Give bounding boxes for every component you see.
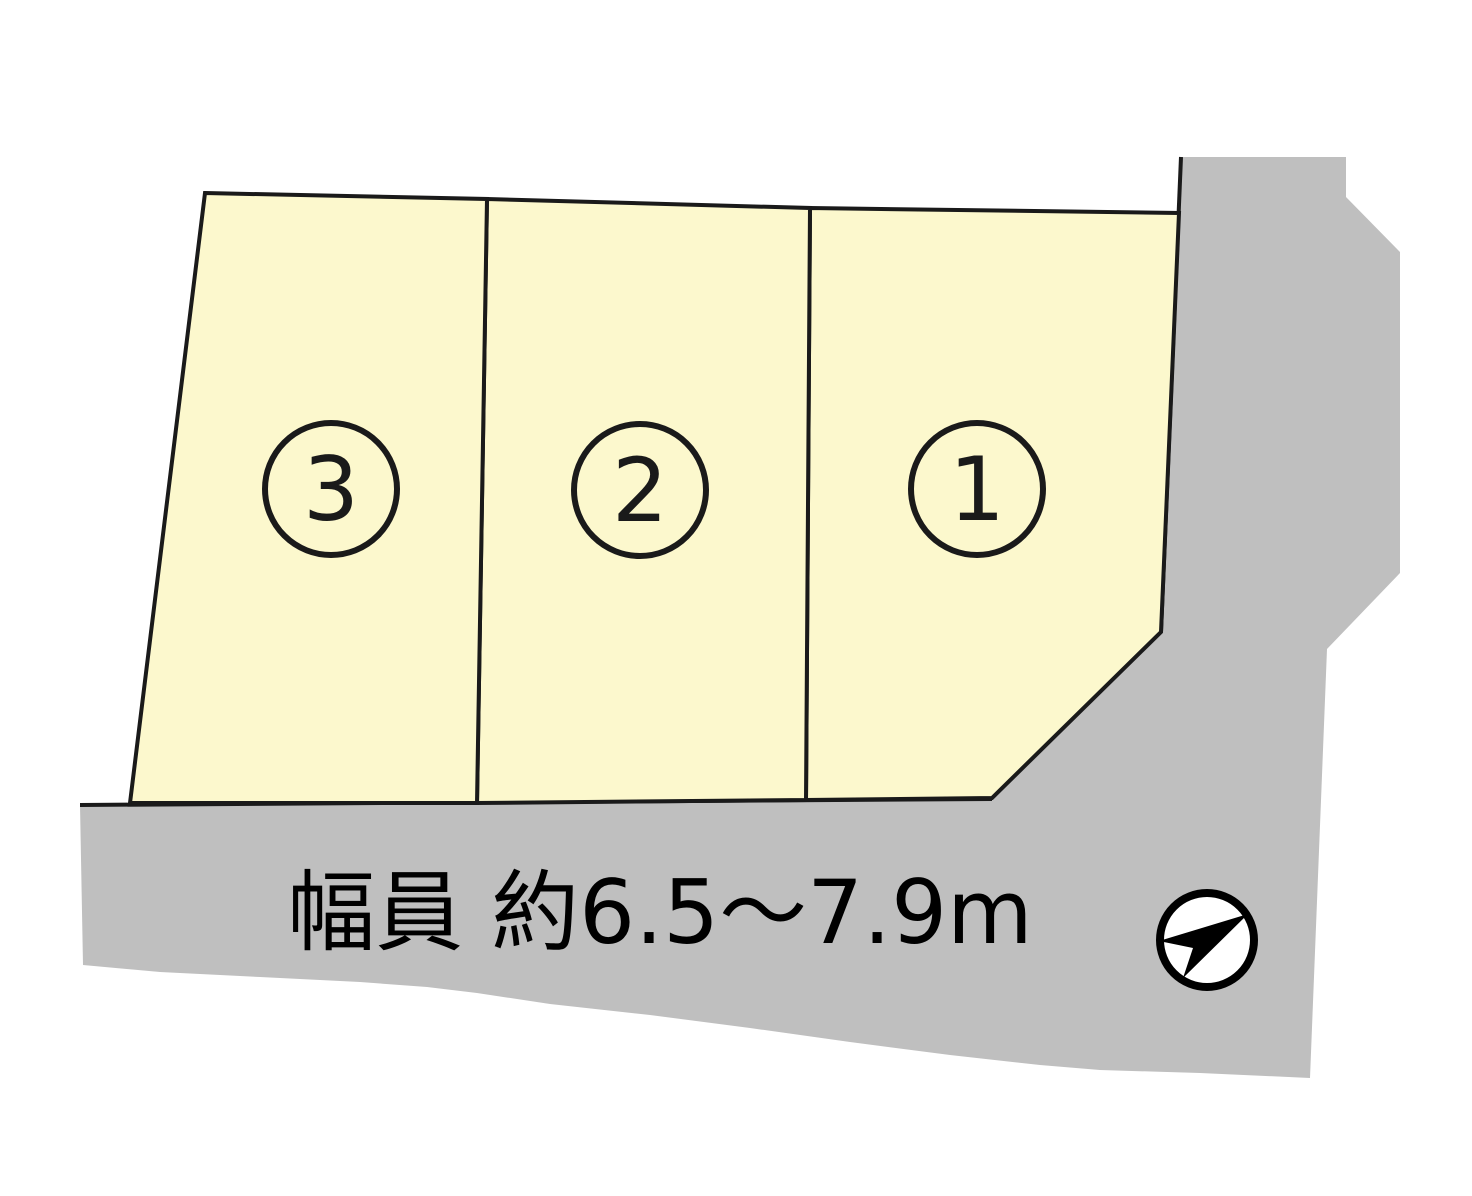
lot-layout-diagram: 1 2 3 幅員 約6.5〜7.9m: [0, 0, 1472, 1196]
site-plan-canvas: 1 2 3 幅員 約6.5〜7.9m: [0, 0, 1472, 1196]
lot-2-number: 2: [612, 439, 668, 542]
road-width-label: 幅員 約6.5〜7.9m: [287, 861, 1033, 964]
lot-3-number: 3: [303, 438, 359, 541]
north-arrow-icon: [1159, 893, 1254, 987]
lot-1-number: 1: [949, 438, 1005, 541]
